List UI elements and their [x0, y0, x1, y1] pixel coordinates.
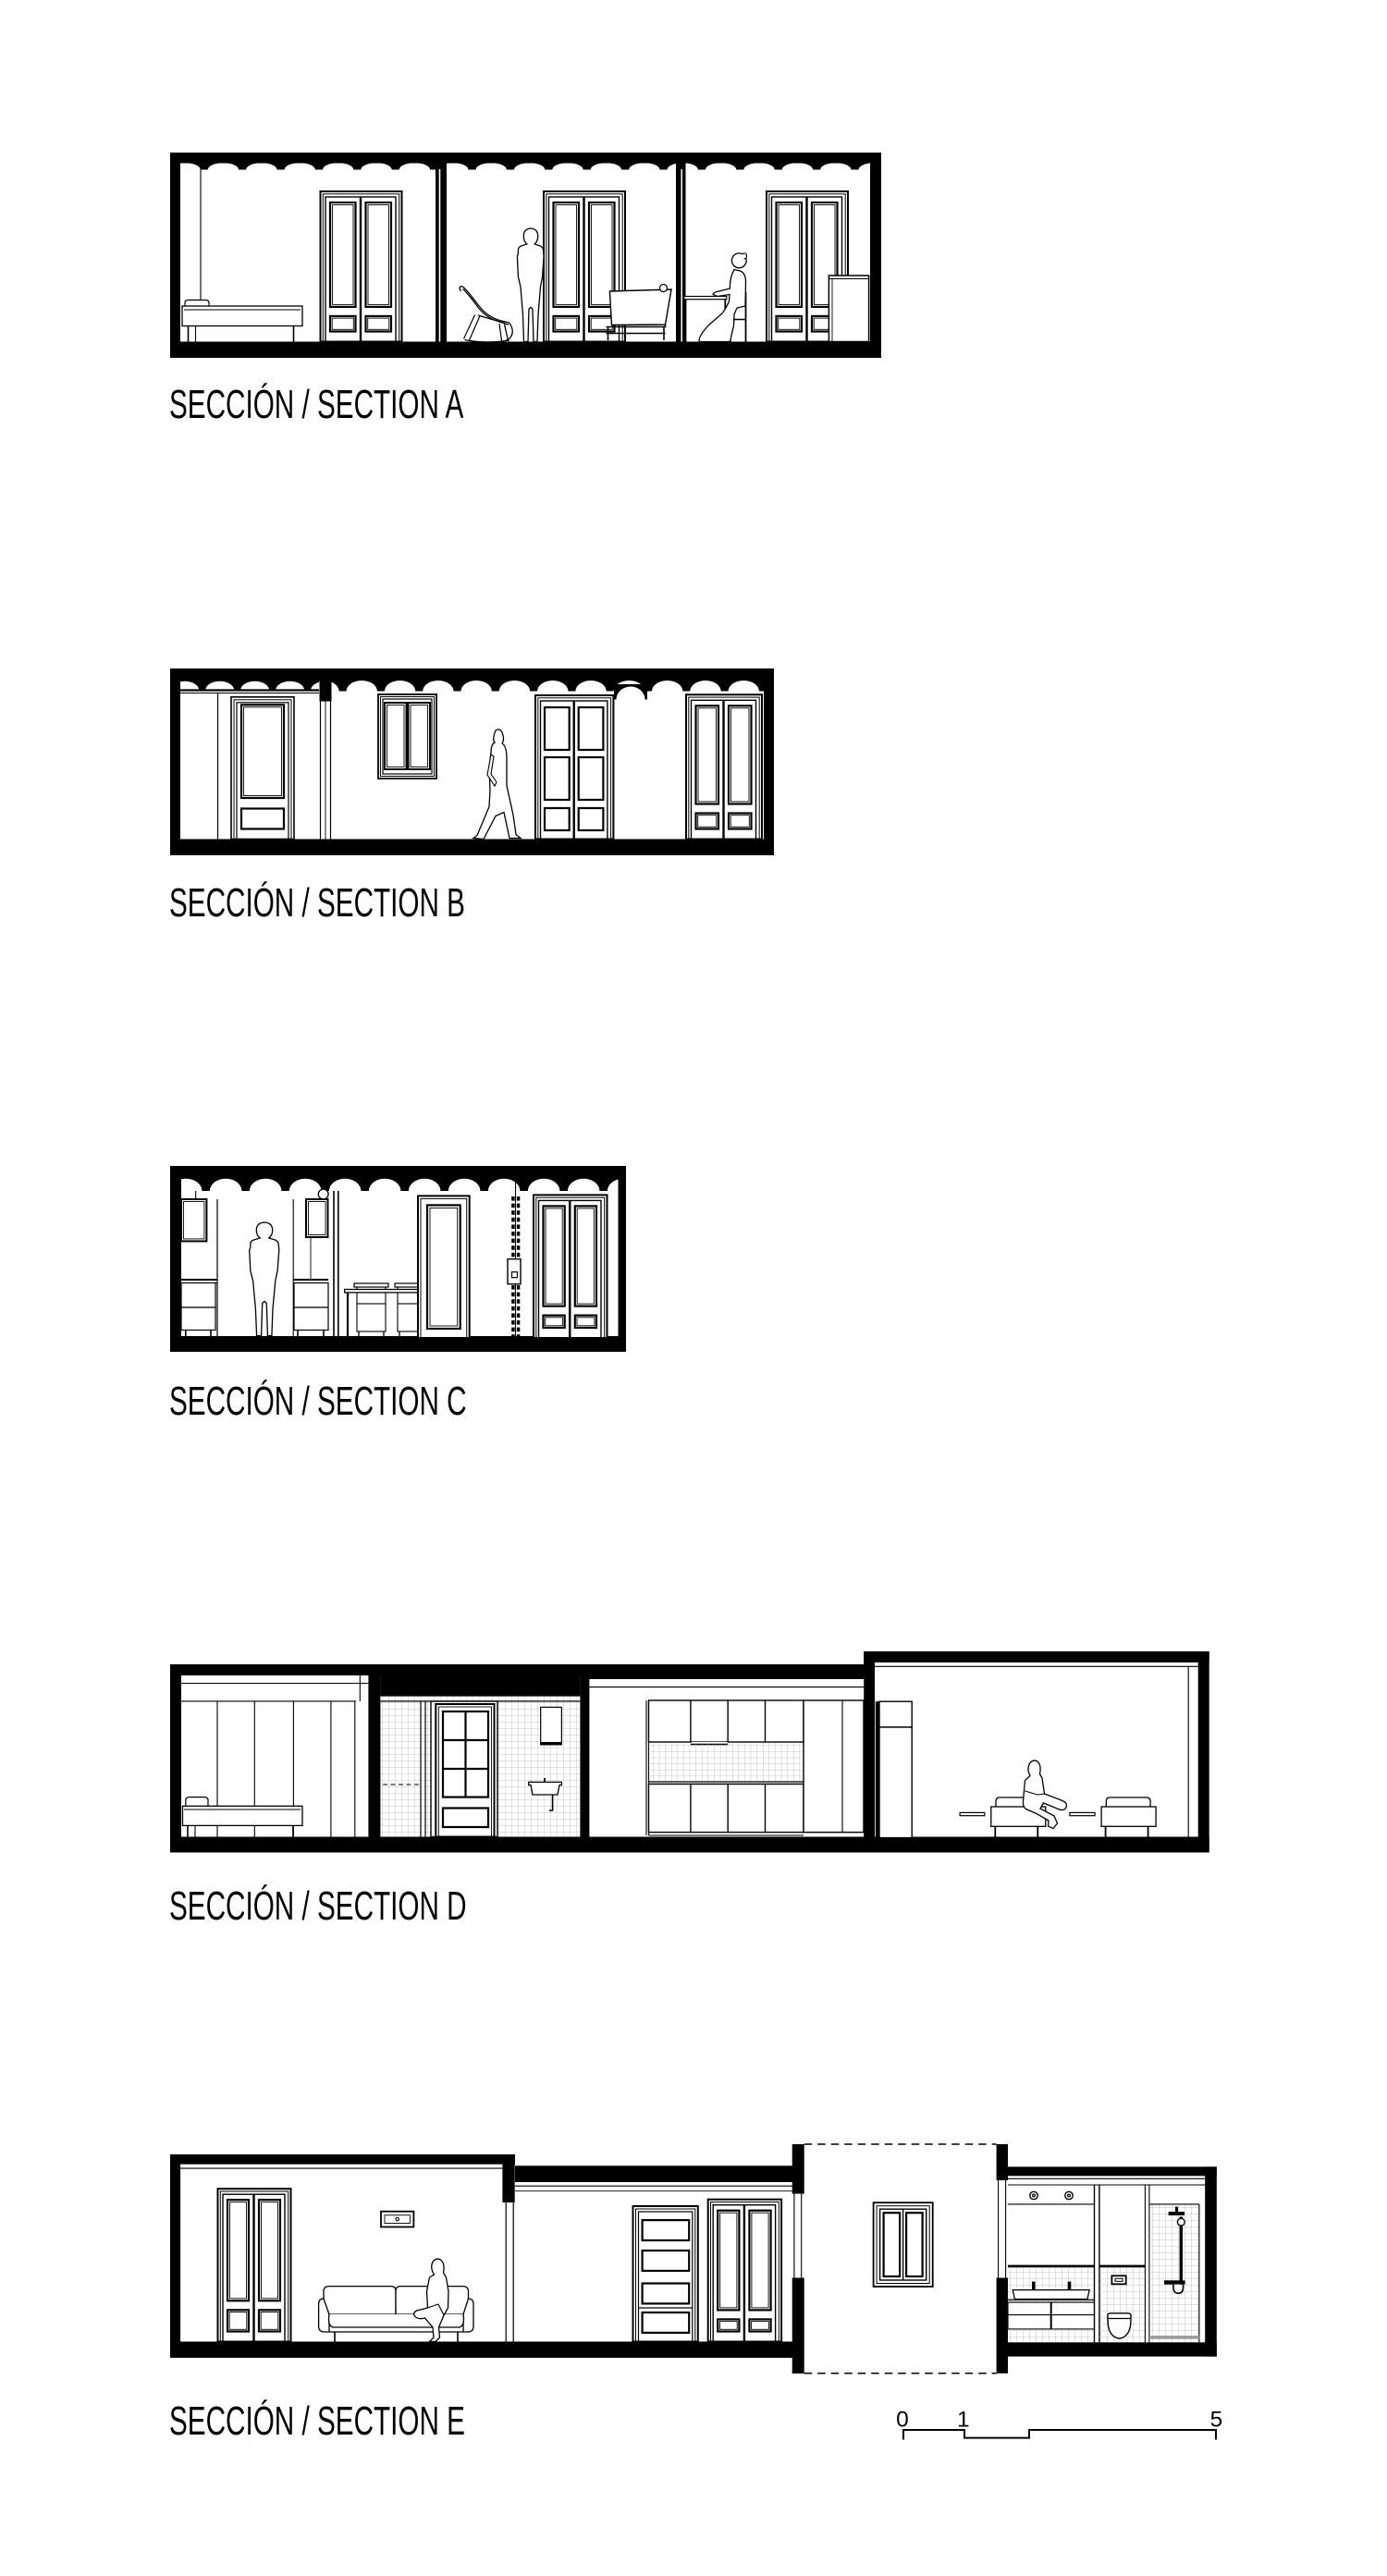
svg-text:SECCIÓN / SECTION C: SECCIÓN / SECTION C [169, 1378, 467, 1423]
svg-text:5: 5 [1210, 2408, 1223, 2433]
svg-text:0: 0 [896, 2408, 909, 2433]
svg-text:1: 1 [957, 2408, 970, 2433]
svg-text:SECCIÓN / SECTION B: SECCIÓN / SECTION B [169, 879, 465, 925]
svg-text:SECCIÓN / SECTION E: SECCIÓN / SECTION E [169, 2398, 465, 2443]
svg-text:SECCIÓN / SECTION A: SECCIÓN / SECTION A [169, 381, 463, 426]
svg-text:SECCIÓN / SECTION D: SECCIÓN / SECTION D [169, 1883, 467, 1928]
